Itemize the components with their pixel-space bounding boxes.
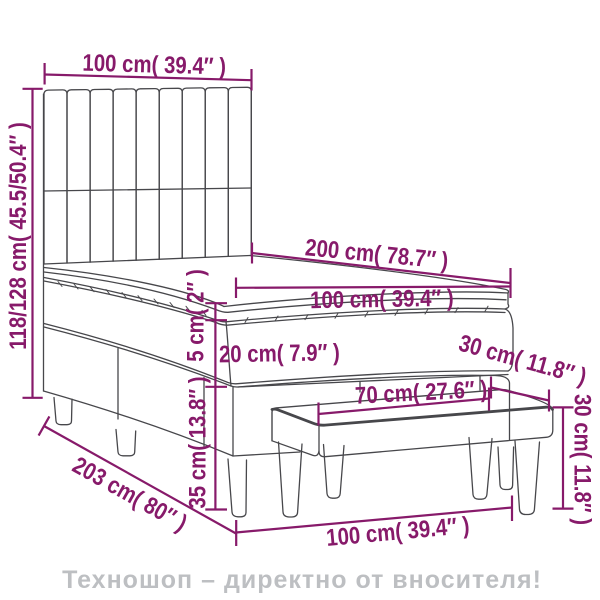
svg-text:Техношоп – директно от вносите: Техношоп – директно от вносителя! [62,566,542,594]
svg-text:5 cm( 2″ ): 5 cm( 2″ ) [182,269,209,362]
svg-text:35 cm( 13.8″ ): 35 cm( 13.8″ ) [184,376,211,508]
svg-text:100 cm( 39.4″ ): 100 cm( 39.4″ ) [310,284,454,313]
svg-text:70 cm( 27.6″ ): 70 cm( 27.6″ ) [354,375,487,409]
svg-text:118/128 cm( 45.5/50.4″ ): 118/128 cm( 45.5/50.4″ ) [4,122,31,349]
svg-text:100 cm( 39.4″ ): 100 cm( 39.4″ ) [325,512,470,552]
svg-text:30 cm( 11.8″ ): 30 cm( 11.8″ ) [569,394,596,525]
svg-text:203 cm( 80″ ): 203 cm( 80″ ) [68,451,192,536]
svg-text:20 cm( 7.9″ ): 20 cm( 7.9″ ) [219,339,340,368]
svg-text:100 cm( 39.4″ ): 100 cm( 39.4″ ) [82,49,226,80]
